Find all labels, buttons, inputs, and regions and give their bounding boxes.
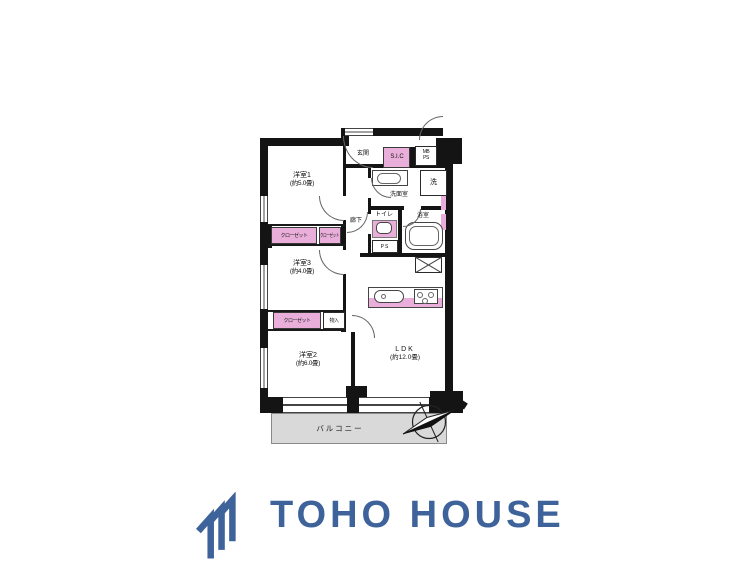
partition-line: [268, 329, 346, 331]
window: [260, 196, 268, 222]
ps-label: PS: [373, 244, 397, 250]
closet-label: クローゼット: [320, 233, 335, 239]
room2-label: 洋室2 (約6.0畳): [277, 352, 339, 368]
toho-house-logo: TOHO HOUSE: [190, 490, 610, 563]
genkan-label: 玄関: [347, 151, 379, 158]
stove: [414, 289, 438, 304]
ldk-label: LDK (約12.0畳): [370, 346, 440, 362]
mb-ps-label: MB PS: [416, 150, 436, 161]
wall-segment: [343, 146, 346, 196]
door-arc: [419, 116, 443, 140]
toilet-fixture: [376, 222, 392, 234]
wall-segment: [351, 332, 355, 388]
x-mark-icon: [415, 257, 442, 273]
wall-segment: [343, 274, 346, 311]
washer-label: 洗: [421, 179, 446, 187]
burner: [417, 292, 423, 298]
sic-label: S.I.C: [385, 154, 409, 161]
entrance-opening: [345, 128, 373, 136]
closet: クローゼット: [319, 227, 341, 244]
faucet: [381, 294, 386, 299]
partition-line: [268, 224, 346, 226]
bathtub-inner: [409, 226, 439, 246]
listing-image: S.I.C クローゼット クローゼット クローゼット 物入 MB PS 洗 PS: [0, 0, 750, 563]
kitchen-counter: [368, 287, 443, 308]
pipe-space: PS: [372, 240, 398, 253]
wall-segment: [341, 224, 346, 245]
kitchen-sink: [374, 290, 404, 303]
room1-label: 洋室1 (約5.0畳): [271, 172, 333, 188]
senmenshitsu-label: 洗面室: [373, 192, 425, 199]
yokushitsu-label: 浴室: [403, 213, 443, 220]
door-arc: [319, 196, 344, 221]
shoe-in-closet: S.I.C: [383, 147, 410, 168]
toire-label: トイレ: [369, 212, 399, 219]
burner: [422, 298, 428, 304]
balcony-door: [283, 397, 347, 413]
window: [260, 348, 268, 388]
rouka-label: 廊下: [343, 218, 369, 225]
room3-label: 洋室3 (約4.0畳): [271, 260, 333, 276]
partition-line: [268, 244, 346, 246]
meter-box: MB PS: [415, 146, 437, 166]
bathtub: [405, 222, 443, 250]
shaft-box: [415, 257, 442, 273]
floor-plan: S.I.C クローゼット クローゼット クローゼット 物入 MB PS 洗 PS: [255, 120, 515, 470]
wall-segment: [260, 138, 345, 146]
door-arc: [352, 315, 375, 338]
window: [260, 265, 268, 309]
north-arrow-compass-icon: [397, 392, 461, 456]
storage-cabinet: 物入: [323, 312, 345, 329]
logo-text: TOHO HOUSE: [270, 494, 565, 537]
closet: クローゼット: [273, 312, 321, 329]
closet-label: クローゼット: [274, 318, 320, 324]
closet: クローゼット: [271, 227, 317, 244]
toho-house-logo-mark-icon: [190, 492, 256, 560]
monoire-label: 物入: [324, 318, 344, 324]
closet-label: クローゼット: [272, 233, 316, 239]
balcony-label: バルコニー: [295, 423, 385, 434]
burner: [428, 292, 434, 298]
